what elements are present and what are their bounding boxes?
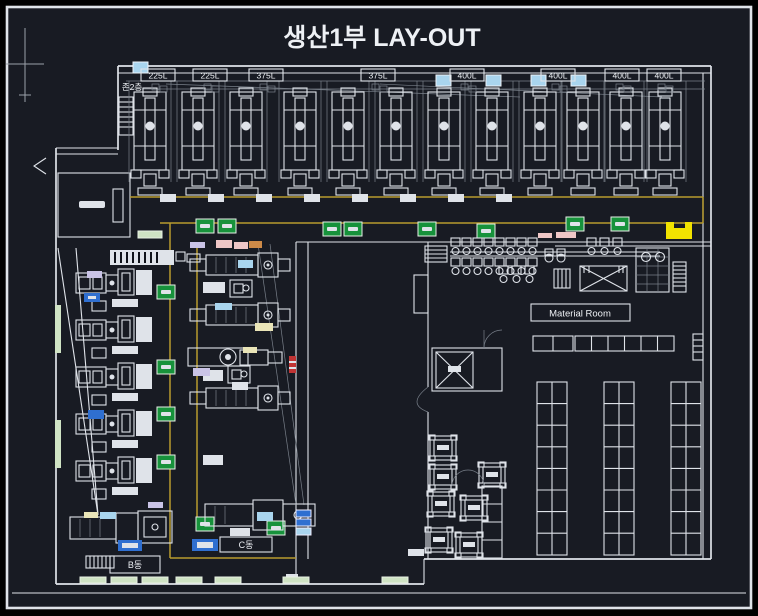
zone-label: 존2층 [122, 82, 143, 92]
svg-text:400L: 400L [655, 71, 674, 81]
svg-text:B동: B동 [128, 560, 142, 570]
svg-text:400L: 400L [549, 71, 568, 81]
svg-text:375L: 375L [369, 71, 388, 81]
svg-text:C동: C동 [239, 540, 254, 550]
svg-text:400L: 400L [458, 71, 477, 81]
svg-text:225L: 225L [201, 71, 220, 81]
svg-text:400L: 400L [613, 71, 632, 81]
layout-drawing: 생산1부 LAY-OUT [0, 0, 758, 616]
cad-canvas: 생산1부 LAY-OUT [0, 0, 758, 616]
page-title: 생산1부 LAY-OUT [283, 24, 480, 52]
svg-text:Material Room: Material Room [549, 309, 611, 320]
svg-text:225L: 225L [149, 71, 168, 81]
svg-text:375L: 375L [257, 71, 276, 81]
